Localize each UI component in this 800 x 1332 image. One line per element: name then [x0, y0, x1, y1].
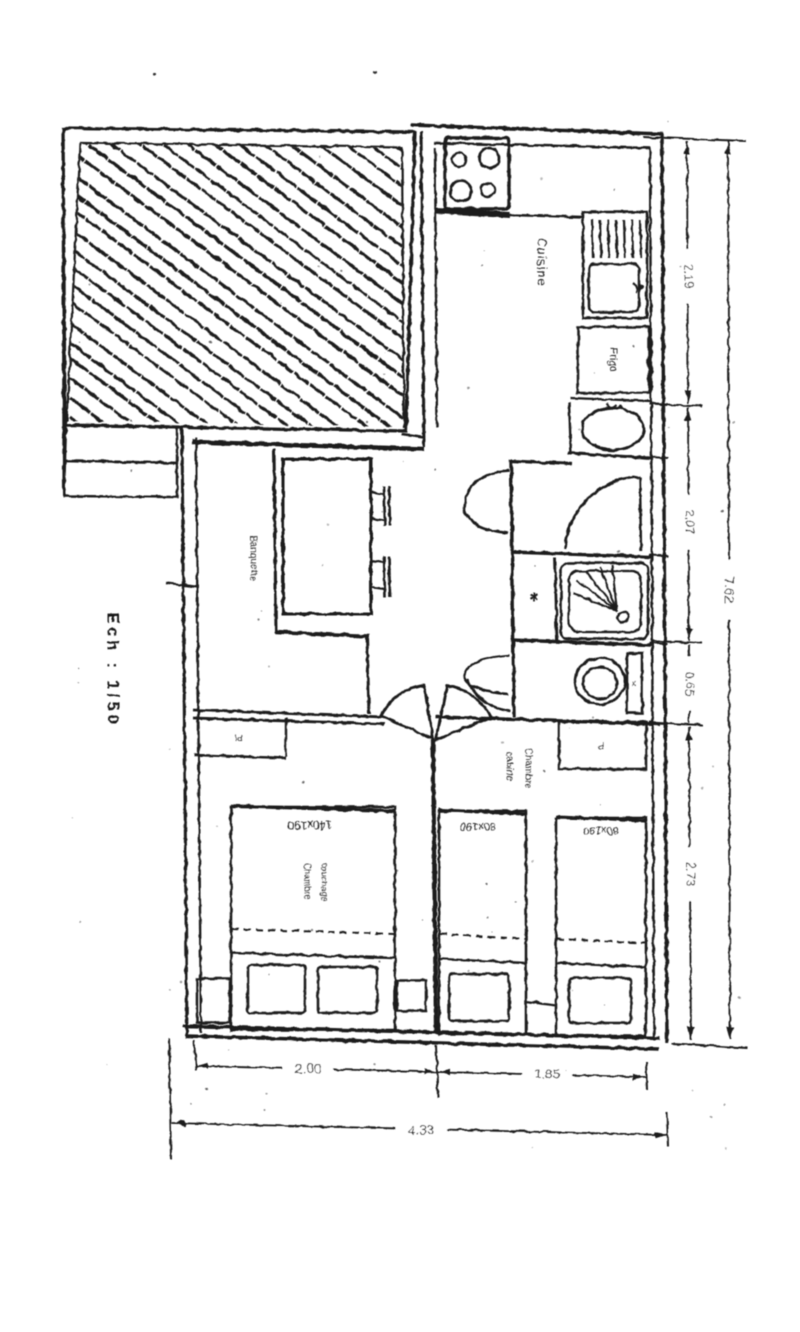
svg-text:2.07: 2.07 — [683, 510, 697, 534]
svg-text:Ech : 1/50: Ech : 1/50 — [104, 612, 122, 727]
svg-text:0.65: 0.65 — [683, 672, 697, 696]
svg-text:✱: ✱ — [529, 592, 538, 604]
svg-text:2.73: 2.73 — [684, 862, 698, 886]
svg-text:4.33: 4.33 — [408, 1123, 434, 1138]
svg-text:P: P — [597, 739, 604, 750]
svg-text:1.85: 1.85 — [534, 1067, 560, 1082]
svg-text:Pl: Pl — [235, 733, 243, 743]
svg-text:80x190: 80x190 — [460, 820, 496, 832]
svg-text:Chambre: Chambre — [522, 747, 533, 789]
svg-text:2.19: 2.19 — [682, 264, 696, 288]
svg-text:Frigo: Frigo — [607, 347, 619, 372]
svg-text:Cuisine: Cuisine — [535, 238, 549, 287]
svg-text:couchage: couchage — [320, 862, 330, 901]
svg-text:Chambre: Chambre — [303, 862, 313, 899]
svg-text:7.62: 7.62 — [721, 576, 737, 603]
svg-text:80x190: 80x190 — [583, 824, 619, 836]
svg-text:cabine: cabine — [503, 751, 514, 781]
svg-text:2.00: 2.00 — [295, 1062, 321, 1077]
svg-text:x: x — [632, 679, 636, 688]
svg-text:140x190: 140x190 — [288, 818, 332, 830]
